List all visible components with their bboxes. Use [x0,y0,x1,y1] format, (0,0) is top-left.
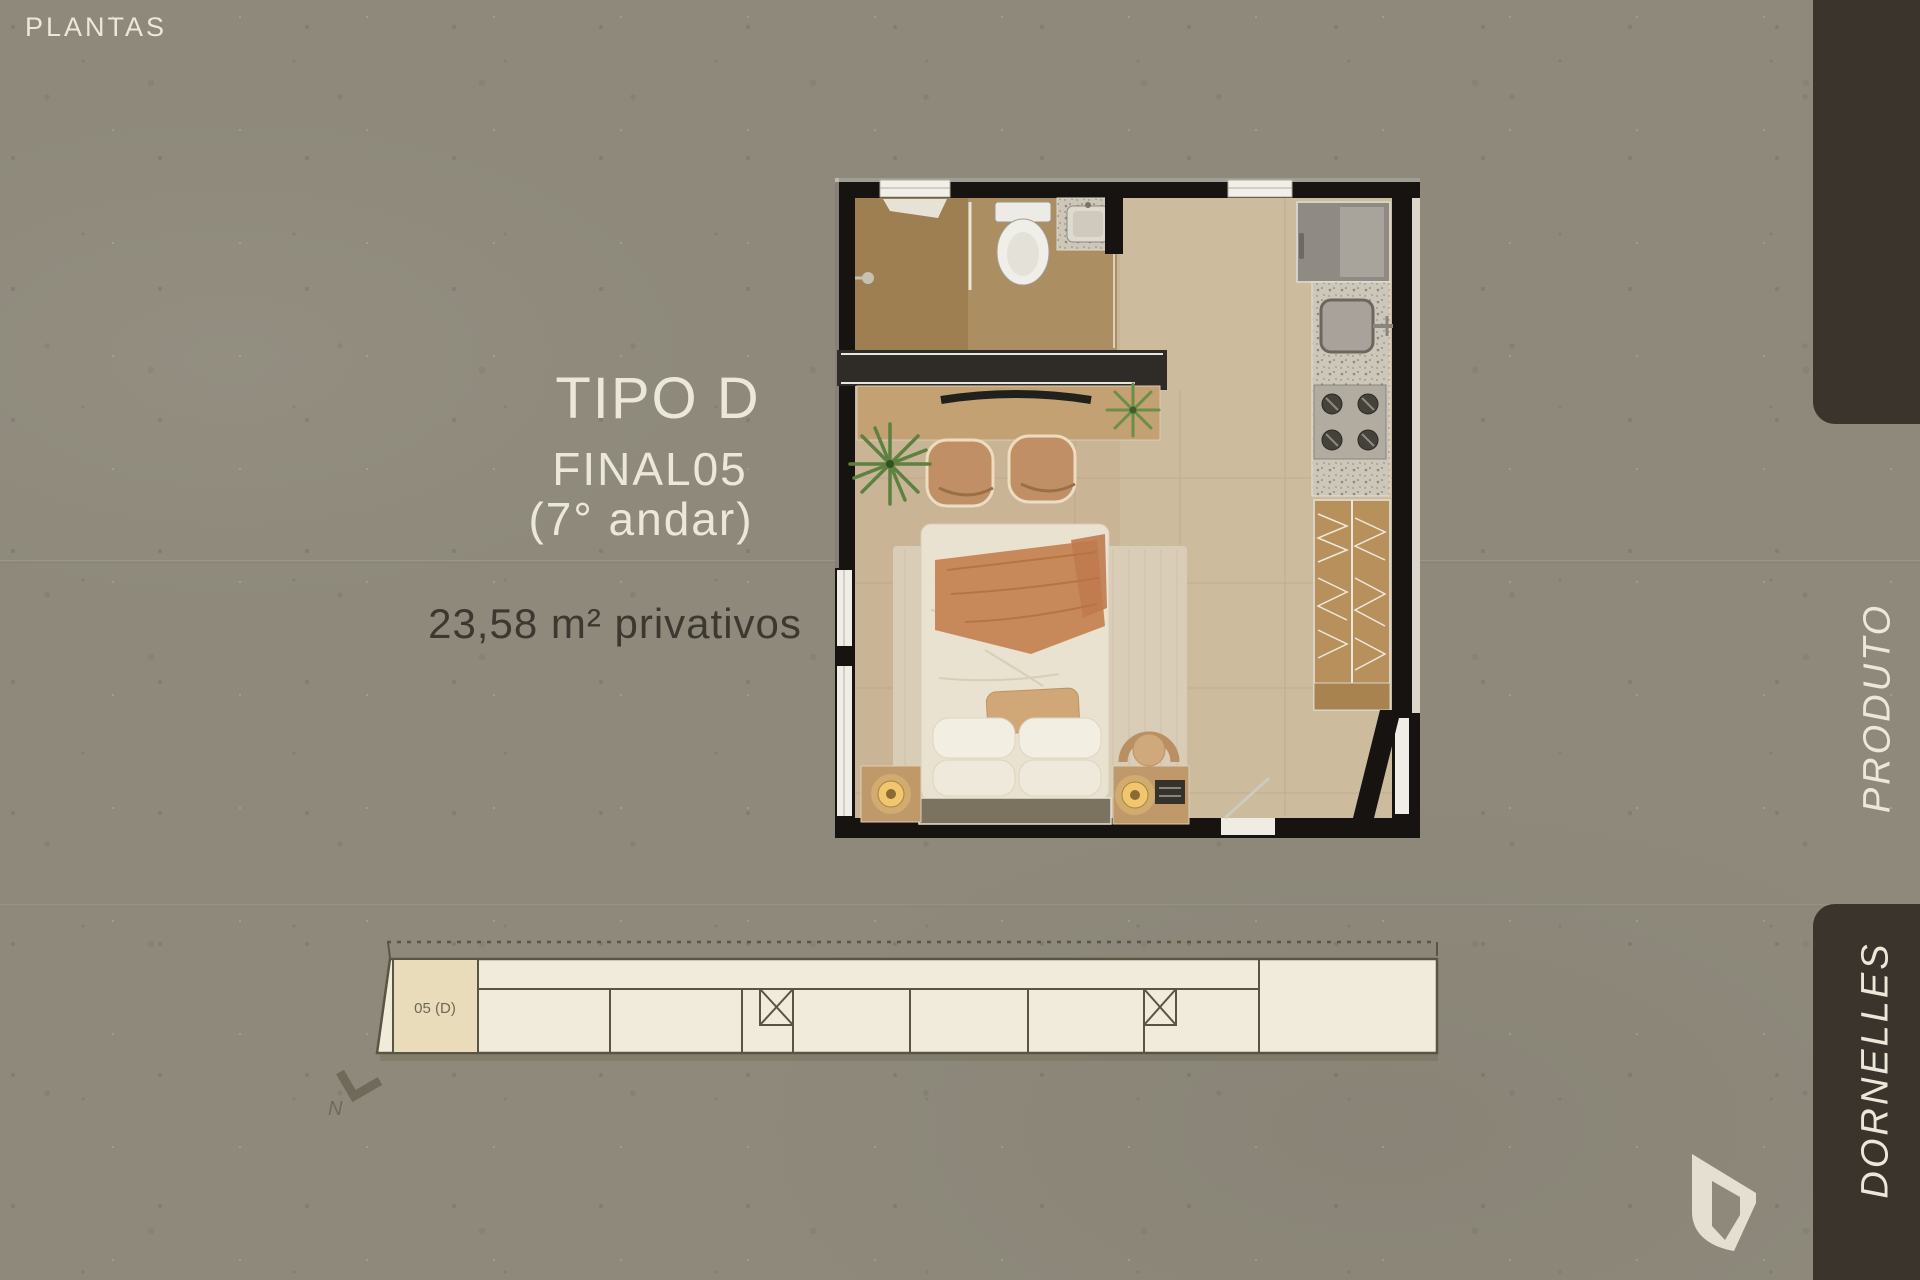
toilet-icon [995,202,1051,285]
unit-floor-label: (7° andar) [528,492,753,546]
brand-logo [1690,1152,1762,1256]
decor-box [1155,780,1185,804]
bed [919,524,1111,824]
unit-type-title: TIPO D [555,365,760,432]
floor-plan [835,178,1420,838]
bathroom [855,196,1123,350]
desk [857,386,1160,440]
unit-area-label: 23,58 m² privativos [428,600,802,648]
nightstand-left [861,766,921,822]
keyplan-unit-label: 05 (D) [414,1000,456,1017]
window-icon [837,570,852,816]
tab-produto[interactable]: PRODUTO [1857,603,1900,813]
wall-highlight [1412,198,1420,713]
fridge-icon [1297,202,1390,282]
plant-icon [850,424,930,504]
concrete-seam [0,904,1920,907]
nightstand-right [1113,766,1189,824]
glass-door [1395,718,1409,814]
desk-chair [1009,436,1075,502]
keyplan-shadow [380,1054,1438,1061]
shower-head-icon [862,272,874,284]
wardrobe [1314,500,1390,710]
north-label: N [328,1098,343,1118]
unit-final-label: FINAL05 [552,442,748,496]
plant-icon [1107,384,1159,436]
tab-dornelles[interactable]: DORNELLES [1855,941,1898,1198]
north-arrow-icon [340,1072,380,1096]
keyplan: 05 (D) N [300,933,1450,1118]
desk-chair [927,440,993,506]
section-label: PLANTAS [25,12,167,43]
cooktop-icon [1314,385,1386,459]
sidebar-rail-top [1813,0,1920,424]
slide: PLANTAS TIPO D FINAL05 (7° andar) 23,58 … [0,0,1920,1280]
tv-console-wall [837,350,1167,390]
building-outline [377,959,1437,1053]
bathroom-partition-wall [1105,196,1123,254]
headboard [919,798,1111,824]
